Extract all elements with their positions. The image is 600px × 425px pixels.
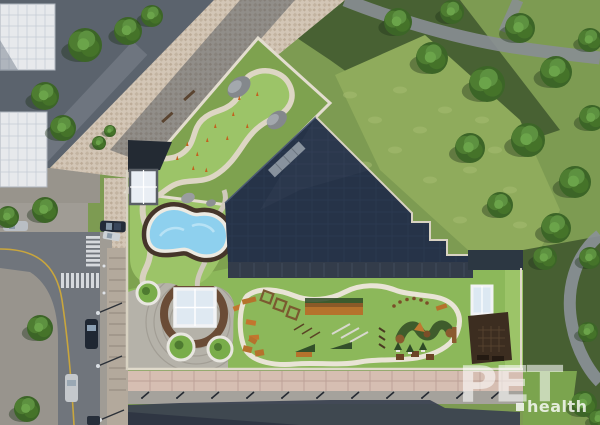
dog-walk-ramp — [305, 298, 363, 315]
skylight — [175, 289, 215, 326]
aerial-render: PET health — [0, 0, 600, 425]
scene-canvas — [0, 0, 600, 425]
kidney-pool — [150, 210, 226, 254]
south-sidewalk — [128, 371, 587, 425]
car — [65, 374, 78, 402]
skylight — [130, 170, 157, 204]
car — [85, 319, 98, 349]
bench — [492, 356, 504, 361]
bench — [477, 355, 489, 360]
corner-lawn — [523, 371, 577, 425]
streets — [0, 203, 128, 425]
building-roof-1 — [0, 4, 55, 70]
car — [100, 221, 126, 233]
plank — [452, 327, 457, 343]
car — [87, 416, 100, 425]
east-wall — [468, 250, 523, 270]
tree-planter — [208, 337, 232, 361]
building-roof-2 — [0, 112, 47, 187]
colonnade-strip — [107, 248, 128, 425]
tree-planter — [168, 334, 194, 360]
tree-planter — [137, 282, 159, 304]
